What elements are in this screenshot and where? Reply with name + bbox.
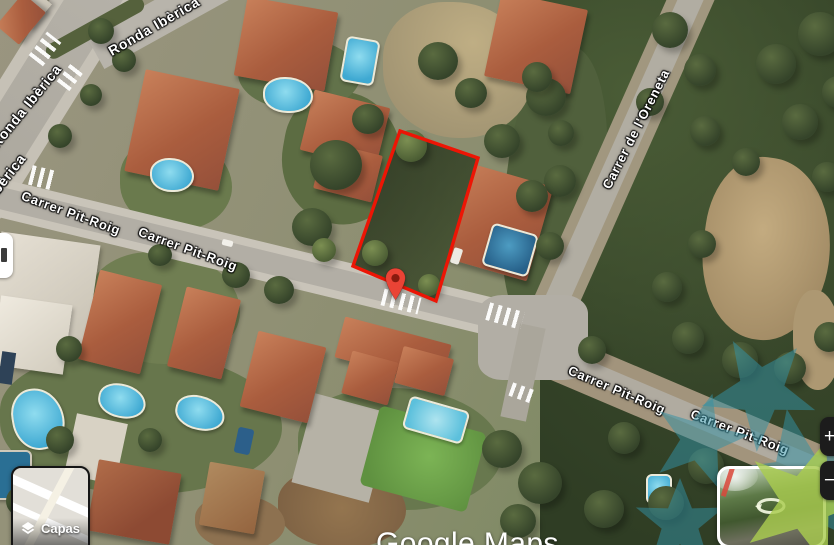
zoom-out-button[interactable]: −	[820, 461, 834, 500]
zoom-in-button[interactable]: +	[820, 417, 834, 456]
layers-control[interactable]: Capas	[11, 466, 90, 545]
layers-label: Capas	[41, 521, 80, 536]
map-pin[interactable]	[384, 266, 407, 303]
map-canvas[interactable]: Ronda Ibèrica Ronda Ibèrica Ronda Ibèric…	[0, 0, 834, 545]
layers-icon	[20, 520, 36, 536]
left-edge-control[interactable]	[0, 233, 13, 278]
left-edge-control-glyph	[1, 248, 7, 262]
google-maps-watermark: Google Maps	[376, 527, 559, 545]
